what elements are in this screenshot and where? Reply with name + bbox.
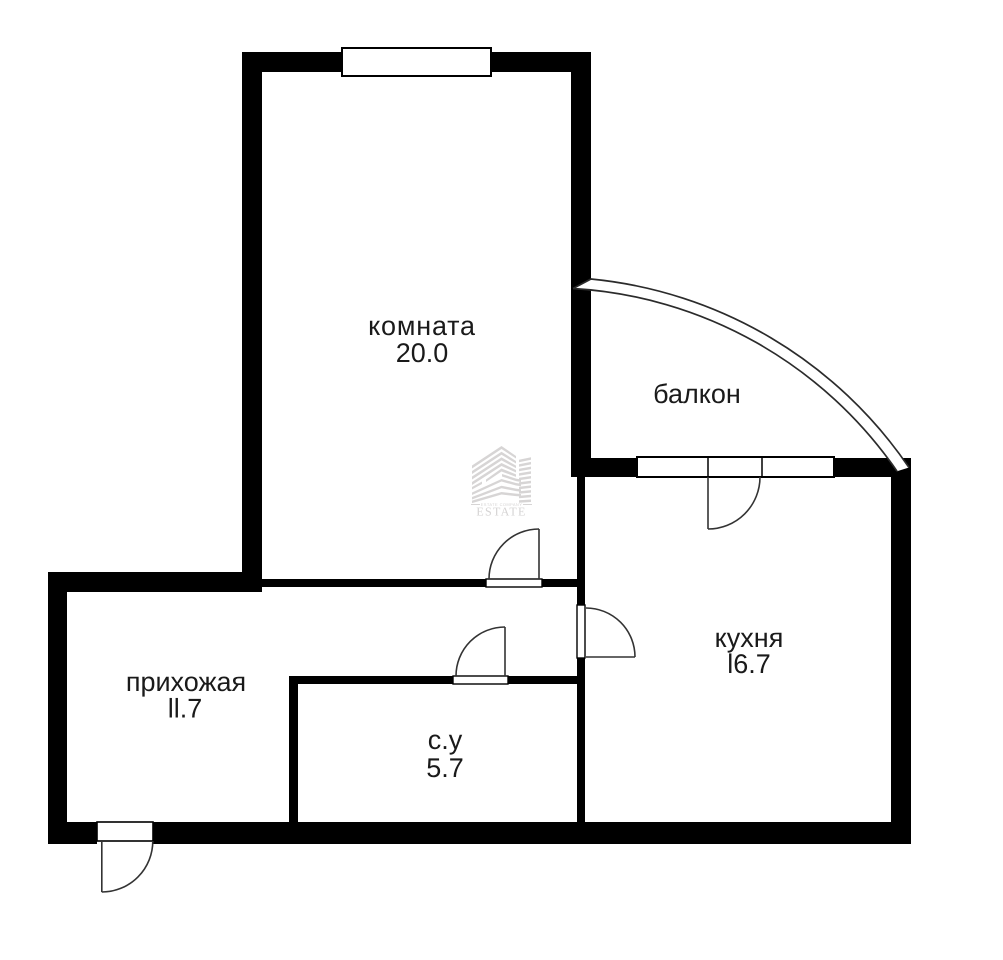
svg-text:балкон: балкон bbox=[653, 379, 741, 409]
svg-text:20.0: 20.0 bbox=[396, 338, 449, 368]
svg-text:комната: комната bbox=[368, 311, 476, 341]
svg-text:ll.7: ll.7 bbox=[168, 694, 203, 724]
svg-text:ESTATE: ESTATE bbox=[476, 505, 526, 519]
svg-text:с.у: с.у bbox=[428, 725, 463, 755]
svg-text:прихожая: прихожая bbox=[126, 667, 246, 697]
svg-text:l6.7: l6.7 bbox=[727, 649, 771, 679]
svg-text:5.7: 5.7 bbox=[426, 753, 464, 783]
